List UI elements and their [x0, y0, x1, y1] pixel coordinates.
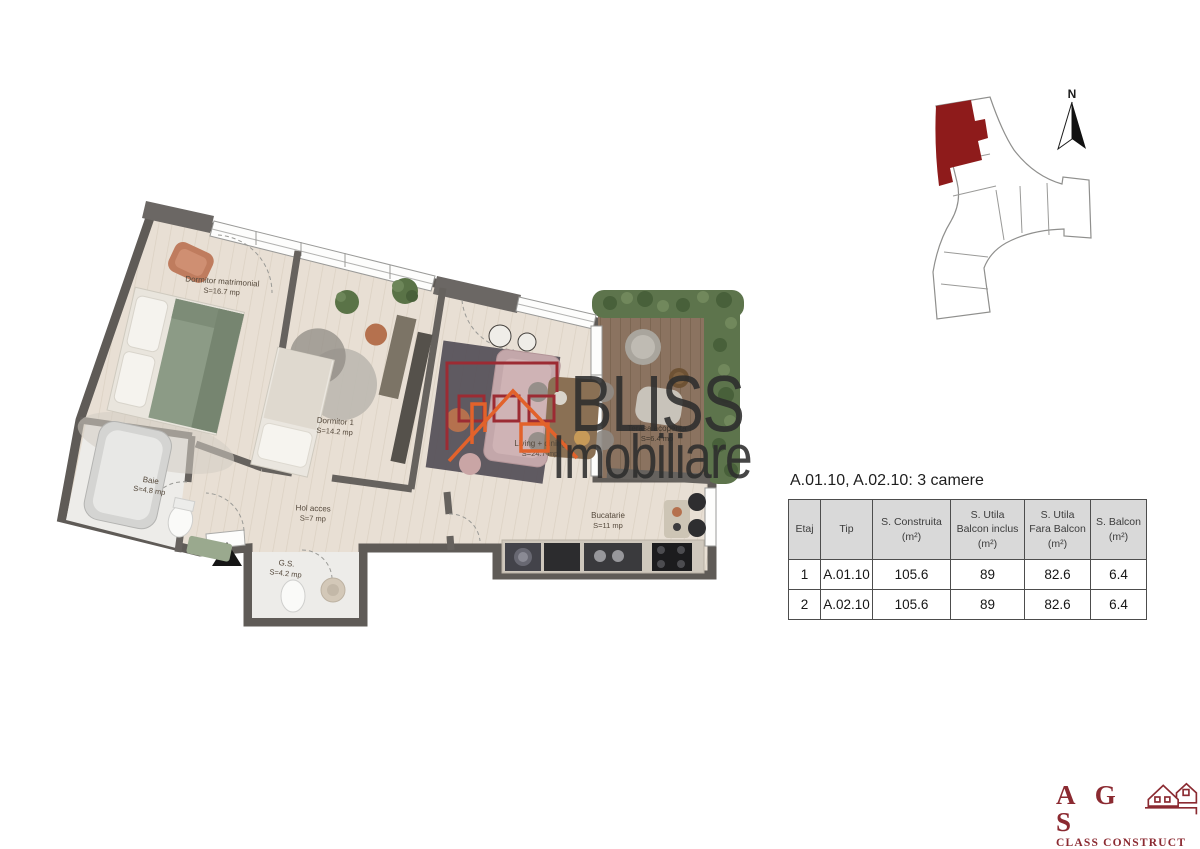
floorplan-page: N Dormitor matrimonialS=16.7 mp Dormitor… — [0, 0, 1200, 849]
watermark-building-icon — [447, 363, 557, 450]
watermark-brand-line2: Imobiliare — [552, 422, 751, 493]
